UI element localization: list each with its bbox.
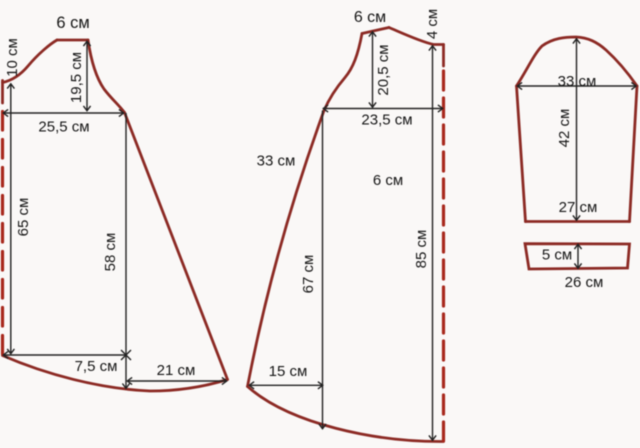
svg-text:42 см: 42 см	[556, 109, 573, 148]
svg-text:6 см: 6 см	[56, 14, 89, 32]
svg-text:58 см: 58 см	[102, 233, 119, 272]
svg-text:21 см: 21 см	[157, 362, 196, 379]
svg-text:25,5 см: 25,5 см	[38, 119, 89, 136]
svg-text:7,5 см: 7,5 см	[75, 358, 118, 375]
svg-text:85 см: 85 см	[413, 230, 430, 269]
svg-text:5 см: 5 см	[542, 247, 572, 264]
svg-text:23,5 см: 23,5 см	[361, 112, 412, 129]
svg-text:27 см: 27 см	[559, 199, 598, 216]
svg-text:6 см: 6 см	[354, 9, 386, 26]
svg-text:6 см: 6 см	[373, 172, 403, 189]
svg-text:20,5 см: 20,5 см	[375, 44, 392, 95]
svg-text:4 см: 4 см	[424, 9, 441, 39]
svg-text:15 см: 15 см	[269, 363, 308, 380]
svg-text:19,5 см: 19,5 см	[68, 52, 85, 103]
svg-text:65 см: 65 см	[15, 198, 32, 237]
svg-text:10 см: 10 см	[4, 38, 21, 77]
svg-text:26 см: 26 см	[565, 274, 604, 291]
svg-text:33 см: 33 см	[257, 153, 296, 170]
svg-text:33 см: 33 см	[558, 73, 597, 90]
svg-text:67 см: 67 см	[300, 255, 317, 294]
